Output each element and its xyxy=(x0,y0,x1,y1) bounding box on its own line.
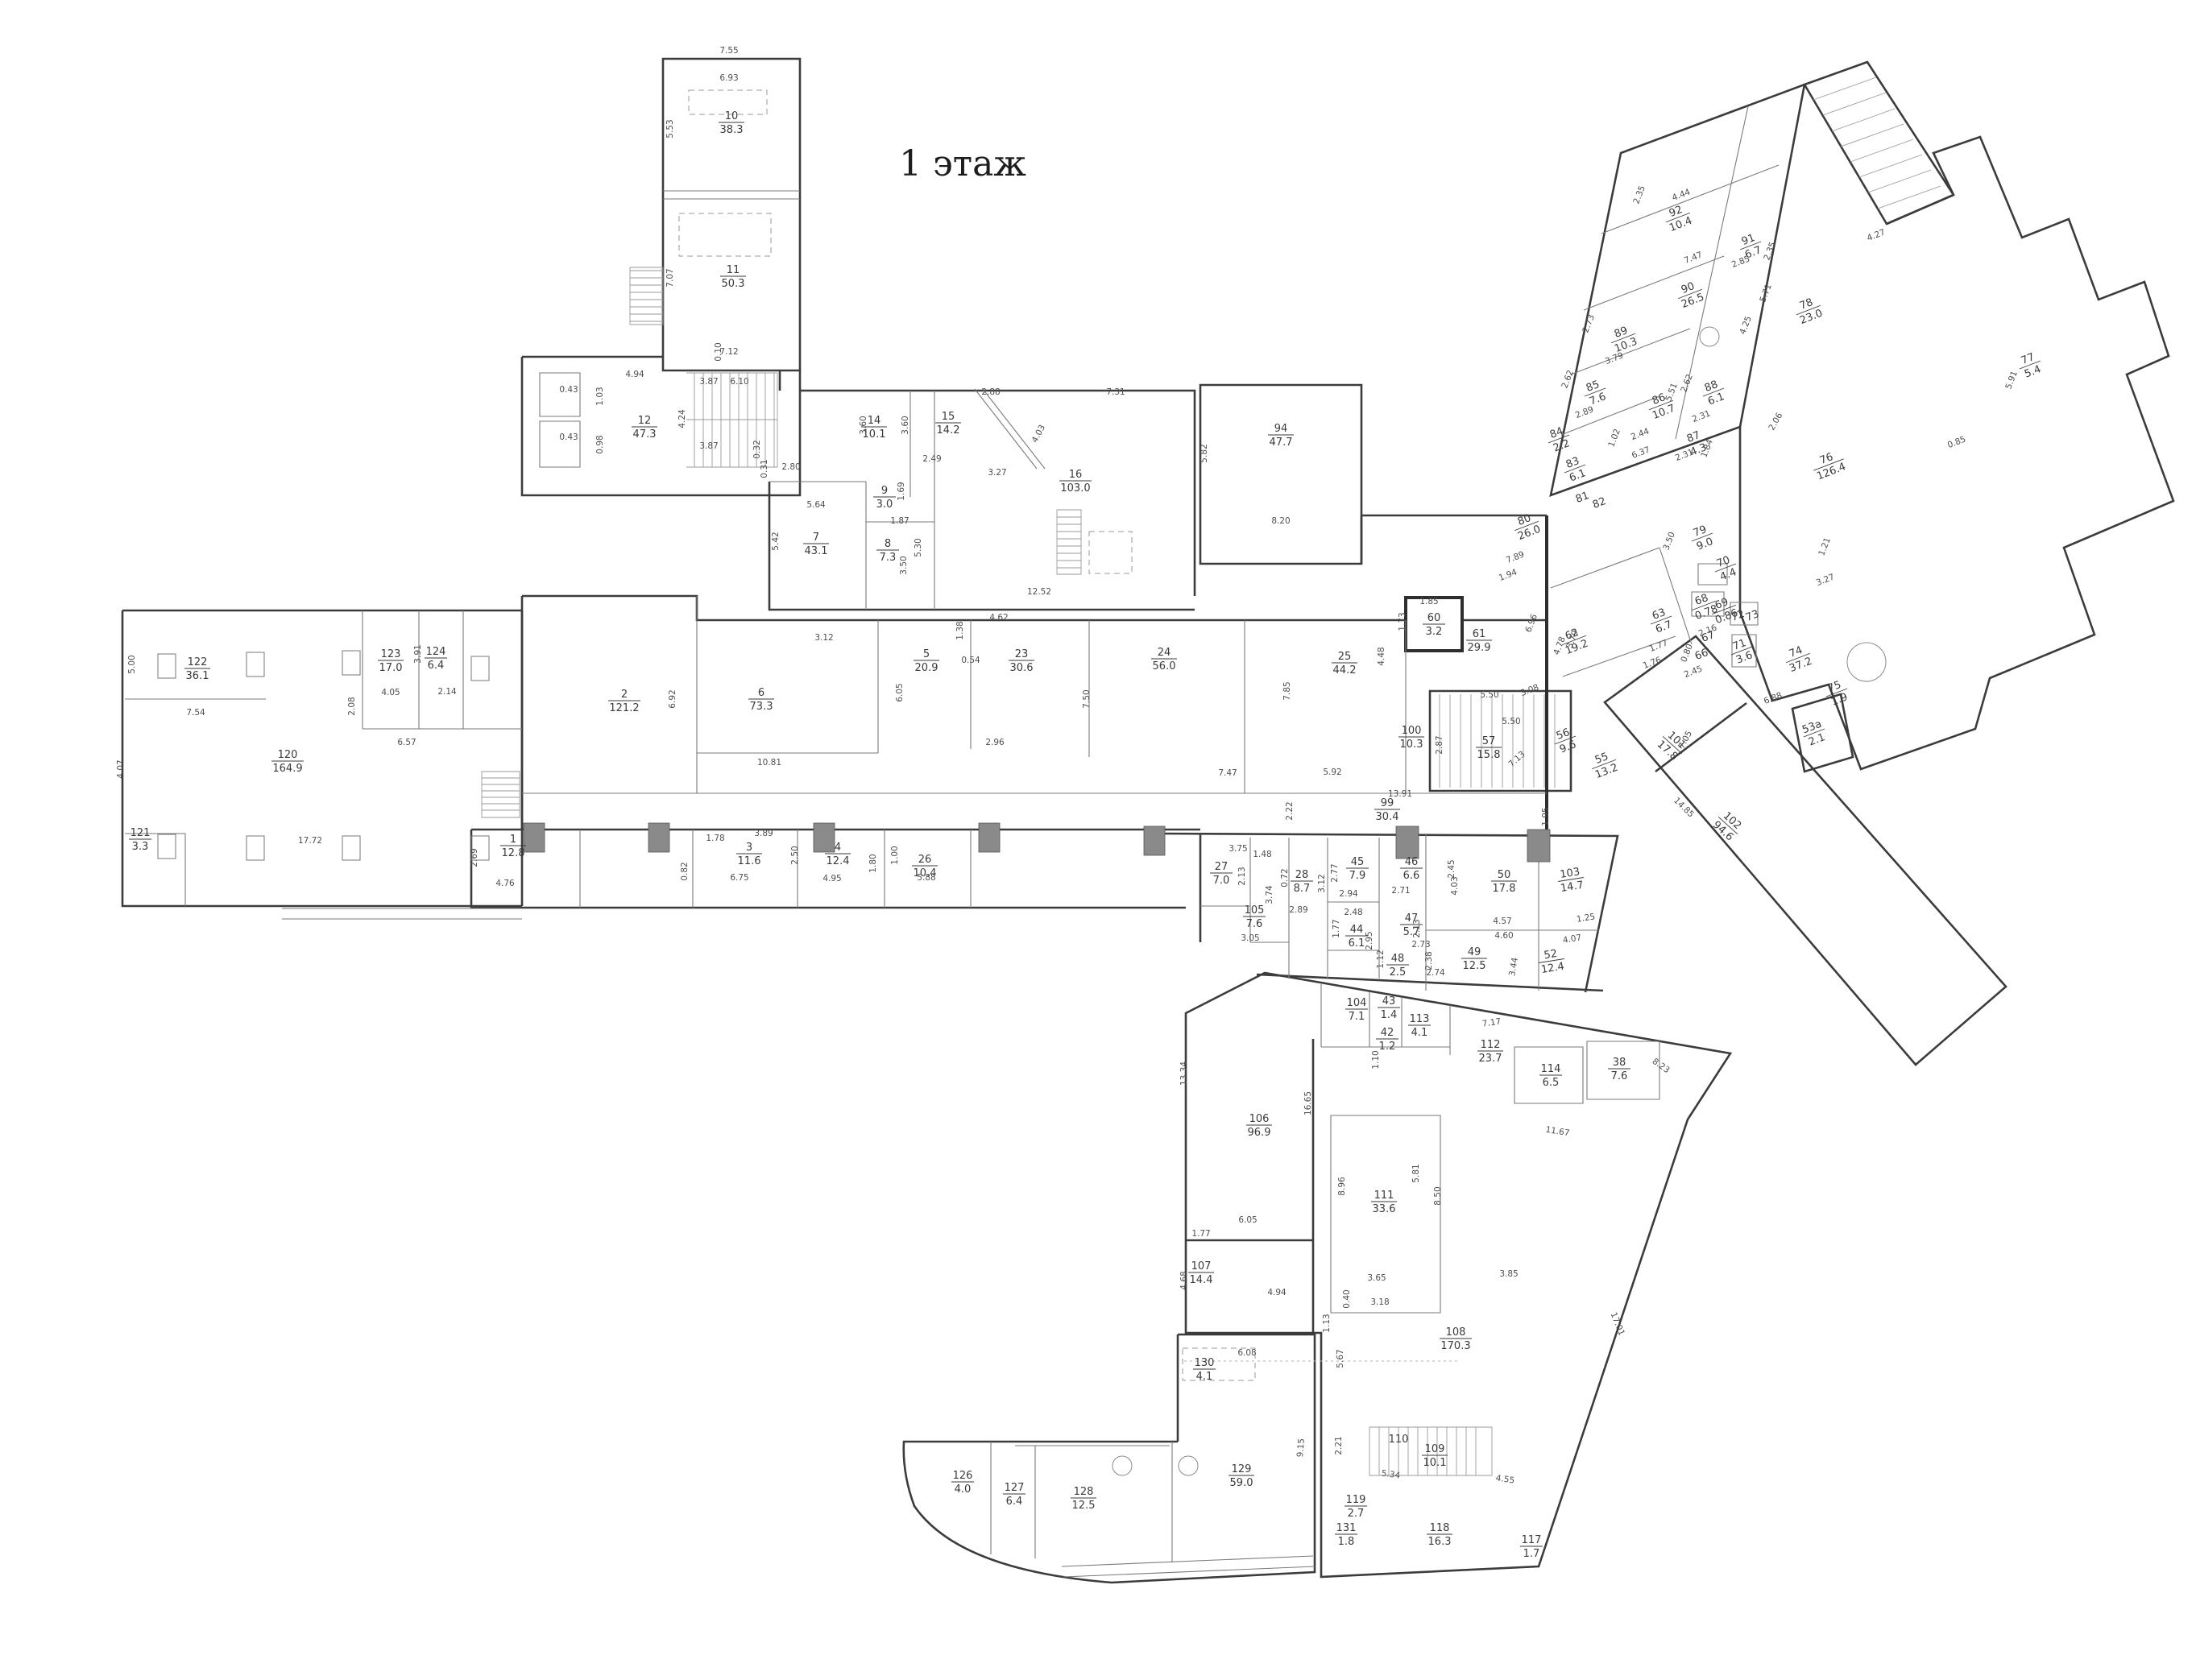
dim-label: 1.03 xyxy=(595,387,605,405)
svg-text:56.0: 56.0 xyxy=(1153,660,1176,672)
dim-label: 9.15 xyxy=(1295,1438,1307,1458)
svg-text:38.3: 38.3 xyxy=(720,124,744,136)
room-label: 110 xyxy=(1389,1434,1409,1446)
dim-label: 0.98 xyxy=(595,435,605,453)
svg-text:14.4: 14.4 xyxy=(1190,1274,1213,1286)
dim-label: 5.50 xyxy=(1480,690,1498,700)
dim-label: 0.43 xyxy=(559,385,578,395)
svg-text:6.4: 6.4 xyxy=(428,660,445,672)
dim-label: 1.21 xyxy=(1817,536,1833,557)
svg-text:96.9: 96.9 xyxy=(1248,1127,1271,1139)
dim-label: 7.07 xyxy=(665,268,675,287)
dim-label: 8.50 xyxy=(1433,1186,1443,1205)
dim-label: 4.27 xyxy=(1866,227,1887,243)
dim-label: 7.89 xyxy=(1505,549,1526,565)
svg-text:129: 129 xyxy=(1232,1463,1252,1475)
svg-text:73.3: 73.3 xyxy=(750,701,773,713)
svg-text:3.2: 3.2 xyxy=(1426,626,1443,638)
dim-label: 2.06 xyxy=(1767,411,1784,432)
svg-text:4.0: 4.0 xyxy=(955,1483,972,1496)
svg-text:10.3: 10.3 xyxy=(1400,739,1423,751)
dim-label: 3.87 xyxy=(699,377,718,387)
dim-label: 1.25 xyxy=(1576,912,1596,925)
room-label: 2544.2 xyxy=(1332,651,1357,677)
dim-label: 2.96 xyxy=(985,738,1005,747)
svg-text:2: 2 xyxy=(621,689,628,701)
svg-text:50: 50 xyxy=(1498,869,1511,881)
room-label: 857.6 xyxy=(1581,377,1611,409)
dim-label: 2.94 xyxy=(1339,889,1358,899)
dim-label: 2.89 xyxy=(1574,404,1595,420)
dim-label: 4.05 xyxy=(381,688,400,697)
svg-text:127: 127 xyxy=(1005,1482,1025,1494)
dim-label: 3.60 xyxy=(901,416,910,434)
room-label: 10294.6 xyxy=(1709,808,1746,844)
svg-text:109: 109 xyxy=(1425,1443,1445,1455)
dim-label: 8.23 xyxy=(1651,1057,1672,1075)
dim-label: 13.34 xyxy=(1179,1061,1189,1086)
stair-entry xyxy=(686,373,777,467)
dim-label: 7.47 xyxy=(1683,250,1704,266)
room-label: 842.2 xyxy=(1544,424,1575,456)
dim-label: 5.64 xyxy=(806,500,826,510)
dim-label: 3.12 xyxy=(814,633,833,643)
dim-label: 14.85 xyxy=(1672,796,1696,820)
room-label: 4912.5 xyxy=(1461,946,1487,972)
room-label: 1514.2 xyxy=(935,411,961,437)
dim-label: 5.81 xyxy=(1411,1164,1421,1182)
dim-label: 2.45 xyxy=(1447,859,1456,878)
room-label: 1150.3 xyxy=(720,264,746,290)
svg-text:25: 25 xyxy=(1338,651,1352,663)
dim-label: 4.94 xyxy=(1267,1288,1287,1297)
floor-title: 1 этаж xyxy=(899,143,1026,184)
stair-west-wing xyxy=(482,772,520,817)
dim-label: 16.65 xyxy=(1303,1091,1313,1115)
svg-text:12.5: 12.5 xyxy=(1072,1500,1096,1512)
room-label: 704.4 xyxy=(1711,552,1742,585)
room-label: 120164.9 xyxy=(271,749,304,775)
svg-text:46: 46 xyxy=(1405,856,1419,868)
dim-label: 0.82 xyxy=(680,862,690,880)
svg-text:4: 4 xyxy=(835,842,841,854)
dim-label: 2.22 xyxy=(1285,801,1295,820)
dim-label: 2.69 xyxy=(470,848,479,867)
svg-text:114: 114 xyxy=(1541,1063,1561,1075)
room-label: 1264.0 xyxy=(951,1470,974,1496)
dim-label: 1.00 xyxy=(890,846,900,864)
room-label: 12236.1 xyxy=(184,656,210,682)
svg-text:106: 106 xyxy=(1249,1113,1270,1125)
dim-label: 2.71 xyxy=(1391,886,1410,896)
room-label: 520.9 xyxy=(914,648,939,674)
room-label: 431.4 xyxy=(1378,995,1400,1021)
svg-text:7: 7 xyxy=(813,532,819,544)
svg-text:23: 23 xyxy=(1015,648,1029,660)
svg-text:8.7: 8.7 xyxy=(1294,883,1311,895)
svg-text:7.6: 7.6 xyxy=(1246,918,1263,930)
svg-text:14.7: 14.7 xyxy=(1560,879,1585,895)
room-label: 636.7 xyxy=(1647,605,1677,637)
svg-text:11: 11 xyxy=(727,264,740,276)
dim-label: 5.30 xyxy=(914,538,923,557)
dim-label: 7.17 xyxy=(1481,1016,1502,1028)
dim-label: 5.91 xyxy=(2003,370,2020,391)
svg-text:111: 111 xyxy=(1374,1190,1394,1202)
dim-label: 2.48 xyxy=(1344,908,1362,917)
room-label: 775.4 xyxy=(2016,350,2046,382)
stair-wing xyxy=(1813,77,1941,209)
dim-label: 5.00 xyxy=(127,655,137,673)
dim-label: 6.93 xyxy=(719,73,738,83)
svg-text:6.1: 6.1 xyxy=(1349,937,1365,950)
svg-text:121.2: 121.2 xyxy=(609,702,639,714)
svg-text:119: 119 xyxy=(1346,1494,1366,1506)
svg-text:12.4: 12.4 xyxy=(1540,961,1565,976)
dim-label: 4.76 xyxy=(495,879,515,888)
dim-label: 7.47 xyxy=(1218,768,1237,778)
svg-text:6.5: 6.5 xyxy=(1543,1077,1560,1089)
dim-label: 5.51 xyxy=(1664,382,1680,403)
svg-text:10.1: 10.1 xyxy=(1423,1457,1447,1469)
svg-text:45: 45 xyxy=(1351,856,1365,868)
dim-label: 1.12 xyxy=(1376,950,1386,968)
dim-label: 6.75 xyxy=(730,873,748,883)
room-label: 311.6 xyxy=(736,842,762,867)
room-label: 1247.3 xyxy=(632,415,657,441)
svg-text:50.3: 50.3 xyxy=(722,278,745,290)
dim-label: 2.21 xyxy=(1334,1436,1344,1454)
svg-text:131: 131 xyxy=(1336,1522,1357,1534)
svg-text:9: 9 xyxy=(881,485,888,497)
svg-text:15.8: 15.8 xyxy=(1477,749,1501,761)
svg-text:120: 120 xyxy=(278,749,298,761)
dim-label: 0.72 xyxy=(1280,868,1290,887)
dim-label: 4.60 xyxy=(1494,931,1513,941)
dim-label: 3.18 xyxy=(1370,1297,1389,1307)
room-label: 466.6 xyxy=(1400,856,1423,882)
svg-text:110: 110 xyxy=(1389,1434,1409,1446)
room-label: 5513.2 xyxy=(1588,748,1621,781)
dim-label: 2.35 xyxy=(1631,184,1647,205)
dim-label: 5.82 xyxy=(1200,444,1209,462)
dim-label: 5.92 xyxy=(1323,768,1341,777)
svg-text:6: 6 xyxy=(758,687,764,699)
dimension-labels-layer: 7.556.935.537.077.120.104.940.430.431.03… xyxy=(116,46,2020,1486)
svg-text:33.6: 33.6 xyxy=(1373,1203,1396,1215)
room-label: 1047.1 xyxy=(1345,997,1368,1023)
room-label: 10010.3 xyxy=(1398,725,1424,751)
dim-label: 2.87 xyxy=(1435,735,1444,754)
svg-text:42: 42 xyxy=(1381,1027,1394,1039)
svg-text:6.4: 6.4 xyxy=(1006,1496,1023,1508)
svg-text:16: 16 xyxy=(1069,469,1083,481)
room-label: 16103.0 xyxy=(1059,469,1092,494)
dim-label: 3.44 xyxy=(1507,957,1520,977)
dim-label: 0.85 xyxy=(1946,434,1967,450)
stairs xyxy=(482,77,1941,1475)
dim-label: 3.87 xyxy=(699,441,718,451)
dim-label: 8.20 xyxy=(1271,516,1290,526)
svg-text:82: 82 xyxy=(1591,495,1608,511)
svg-text:23.7: 23.7 xyxy=(1479,1053,1502,1065)
svg-text:7.6: 7.6 xyxy=(1611,1070,1628,1082)
dim-label: 2.77 xyxy=(1330,863,1340,882)
dim-label: 3.12 xyxy=(1317,874,1327,892)
svg-text:99: 99 xyxy=(1381,797,1394,809)
svg-text:126: 126 xyxy=(953,1470,973,1482)
dim-label: 4.62 xyxy=(989,613,1008,623)
dim-label: 0.32 xyxy=(752,440,762,458)
dim-label: 1.77 xyxy=(1332,919,1341,937)
stair-tower xyxy=(630,267,663,325)
svg-text:20.9: 20.9 xyxy=(915,662,938,674)
svg-text:2.7: 2.7 xyxy=(1348,1508,1365,1520)
dim-label: 2.13 xyxy=(1237,867,1247,885)
dim-label: 4.95 xyxy=(822,874,841,883)
svg-text:48: 48 xyxy=(1391,953,1405,965)
dim-label: 1.87 xyxy=(890,516,909,526)
dim-label: 6.05 xyxy=(895,683,905,701)
dim-label: 5.67 xyxy=(1336,1349,1345,1368)
svg-text:43.1: 43.1 xyxy=(805,545,828,557)
room-label: 10714.4 xyxy=(1188,1260,1214,1286)
room-label: 1213.3 xyxy=(129,827,151,853)
svg-text:4.1: 4.1 xyxy=(1411,1027,1428,1039)
svg-text:1.2: 1.2 xyxy=(1379,1041,1396,1053)
room-label: 1171.7 xyxy=(1520,1534,1543,1560)
dim-label: 5.71 xyxy=(1758,283,1774,304)
dim-label: 2.80 xyxy=(781,462,800,472)
svg-text:15: 15 xyxy=(942,411,955,423)
svg-text:12.4: 12.4 xyxy=(827,855,850,867)
room-label: 603.2 xyxy=(1423,612,1445,638)
room-label: 11816.3 xyxy=(1427,1522,1452,1548)
dim-label: 7.85 xyxy=(1282,681,1292,700)
dim-label: 1.38 xyxy=(955,621,965,639)
dim-label: 2.08 xyxy=(347,697,357,715)
dim-label: 5.50 xyxy=(1502,717,1520,726)
svg-text:44: 44 xyxy=(1350,924,1364,936)
room-label: 482.5 xyxy=(1386,953,1409,979)
dim-label: 2.89 xyxy=(1289,905,1307,915)
dim-label: 2.45 xyxy=(1683,664,1704,680)
svg-text:130: 130 xyxy=(1195,1357,1215,1369)
dim-label: 4.07 xyxy=(1562,933,1582,946)
room-label: 12812.5 xyxy=(1071,1486,1096,1512)
room-label: 10910.1 xyxy=(1422,1443,1448,1469)
svg-text:8: 8 xyxy=(885,538,891,550)
svg-text:7.1: 7.1 xyxy=(1349,1011,1365,1023)
svg-text:128: 128 xyxy=(1074,1486,1094,1498)
dim-label: 3.27 xyxy=(988,468,1006,478)
svg-text:118: 118 xyxy=(1430,1522,1450,1534)
room-label: 5212.4 xyxy=(1537,947,1567,977)
svg-text:124: 124 xyxy=(426,646,446,658)
room-label: 751.9 xyxy=(1822,677,1853,710)
dim-label: 3.79 xyxy=(1604,350,1625,366)
svg-text:17.0: 17.0 xyxy=(379,662,403,674)
room-label: 1057.6 xyxy=(1243,904,1266,930)
dim-label: 4.25 xyxy=(1738,315,1754,336)
dim-label: 17.72 xyxy=(298,836,322,846)
room-label: 10314.7 xyxy=(1556,866,1586,896)
dim-label: 12.52 xyxy=(1027,587,1051,597)
svg-text:30.6: 30.6 xyxy=(1010,662,1034,674)
dim-label: 7.55 xyxy=(719,46,738,56)
svg-text:1.8: 1.8 xyxy=(1338,1536,1355,1548)
room-label: 73 xyxy=(1744,608,1761,624)
svg-text:4.1: 4.1 xyxy=(1196,1371,1213,1383)
dim-label: 7.54 xyxy=(186,708,205,718)
room-label: 799.0 xyxy=(1688,522,1718,554)
dim-label: 1.78 xyxy=(706,834,724,843)
svg-text:12.8: 12.8 xyxy=(502,847,525,859)
svg-text:170.3: 170.3 xyxy=(1440,1340,1470,1352)
dim-label: 1.10 xyxy=(1371,1050,1381,1069)
svg-text:61: 61 xyxy=(1473,628,1486,640)
dim-label: 1.77 xyxy=(1191,1229,1210,1239)
room-label: 93.0 xyxy=(873,485,896,511)
room-label: 421.2 xyxy=(1376,1027,1398,1053)
svg-text:1.7: 1.7 xyxy=(1523,1548,1540,1560)
dim-label: 3.27 xyxy=(1815,572,1836,588)
room-label: 743.1 xyxy=(803,532,829,557)
room-label: 11223.7 xyxy=(1477,1039,1503,1065)
dim-label: 10.81 xyxy=(757,758,781,768)
dim-label: 3.60 xyxy=(859,416,868,434)
dim-label: 2.73 xyxy=(1411,940,1430,950)
dim-label: 2.62 xyxy=(1679,373,1695,394)
dim-label: 2.49 xyxy=(922,454,941,464)
svg-text:7.3: 7.3 xyxy=(880,552,897,564)
dim-label: 0.31 xyxy=(760,459,769,478)
svg-text:26: 26 xyxy=(918,854,932,866)
dim-label: 2.50 xyxy=(790,846,800,864)
dim-label: 2.14 xyxy=(437,687,457,697)
dim-label: 11.67 xyxy=(1545,1125,1571,1139)
dim-label: 2.44 xyxy=(1630,426,1651,442)
svg-text:100: 100 xyxy=(1402,725,1422,737)
room-label: 9210.4 xyxy=(1662,201,1695,234)
room-label: 836.1 xyxy=(1560,453,1591,486)
svg-text:10: 10 xyxy=(725,110,739,122)
svg-text:49: 49 xyxy=(1468,946,1481,958)
dim-label: 5.34 xyxy=(1381,1468,1401,1480)
svg-text:112: 112 xyxy=(1481,1039,1501,1051)
svg-text:3.3: 3.3 xyxy=(132,841,149,853)
dim-label: 4.44 xyxy=(1671,187,1692,203)
svg-text:117: 117 xyxy=(1522,1534,1542,1546)
room-label: 6129.9 xyxy=(1466,628,1492,654)
svg-text:12.5: 12.5 xyxy=(1463,960,1486,972)
dim-label: 1.77 xyxy=(1648,638,1669,654)
dim-label: 0.10 xyxy=(714,342,723,361)
dim-label: 6.08 xyxy=(1237,1348,1256,1358)
room-label: 1276.4 xyxy=(1003,1482,1025,1508)
dim-label: 3.50 xyxy=(1661,531,1677,552)
room-label: 5715.8 xyxy=(1476,735,1502,761)
room-label: 2456.0 xyxy=(1151,647,1177,672)
svg-text:38: 38 xyxy=(1613,1057,1626,1069)
svg-text:16.3: 16.3 xyxy=(1428,1536,1452,1548)
dim-label: 4.24 xyxy=(677,409,687,428)
svg-text:43: 43 xyxy=(1382,995,1396,1008)
room-label: 288.7 xyxy=(1291,869,1313,895)
dim-label: 2.88 xyxy=(981,387,1000,397)
dim-label: 6.05 xyxy=(1238,1215,1257,1225)
room-label: 886.1 xyxy=(1699,377,1730,409)
room-label: 387.6 xyxy=(1608,1057,1630,1082)
room-label: 457.9 xyxy=(1346,856,1369,882)
dim-label: 3.74 xyxy=(1265,885,1274,904)
svg-text:164.9: 164.9 xyxy=(272,763,302,775)
room-label: 1246.4 xyxy=(425,646,447,672)
svg-text:104: 104 xyxy=(1347,997,1367,1009)
svg-text:2.5: 2.5 xyxy=(1390,966,1407,979)
dim-label: 4.07 xyxy=(116,759,126,778)
svg-text:59.0: 59.0 xyxy=(1230,1477,1253,1489)
svg-text:123: 123 xyxy=(381,648,401,660)
svg-text:30.4: 30.4 xyxy=(1376,811,1399,823)
dim-label: 4.48 xyxy=(1377,647,1386,665)
dim-label: 5.53 xyxy=(665,119,675,138)
svg-text:6.6: 6.6 xyxy=(1403,870,1420,882)
room-label: 713.6 xyxy=(1727,635,1758,668)
svg-text:44.2: 44.2 xyxy=(1333,664,1357,677)
dim-label: 13.91 xyxy=(1388,789,1412,799)
room-label: 82 xyxy=(1591,495,1608,511)
dim-label: 6.96 xyxy=(1523,613,1539,634)
dim-label: 7.31 xyxy=(1106,387,1125,397)
dim-label: 4.03 xyxy=(1030,423,1048,444)
svg-text:73: 73 xyxy=(1744,608,1761,624)
dim-label: 1.94 xyxy=(1498,567,1519,583)
dim-label: 0.54 xyxy=(961,656,980,665)
dim-label: 17.01 xyxy=(1609,1311,1626,1337)
room-label: 1304.1 xyxy=(1193,1357,1216,1383)
dim-label: 2.13 xyxy=(1412,919,1422,937)
dim-label: 7.05 xyxy=(1677,729,1695,750)
svg-text:113: 113 xyxy=(1410,1013,1430,1025)
dim-label: 4.55 xyxy=(1495,1473,1515,1485)
dim-label: 3.08 xyxy=(1519,682,1540,698)
svg-text:103.0: 103.0 xyxy=(1060,482,1090,494)
dim-label: 1.69 xyxy=(897,482,906,500)
svg-text:107: 107 xyxy=(1191,1260,1212,1272)
dim-label: 2.73 xyxy=(1581,313,1597,334)
svg-text:3: 3 xyxy=(746,842,752,854)
dim-label: 6.10 xyxy=(730,377,748,387)
dim-label: 1.13 xyxy=(1322,1314,1332,1332)
dim-label: 0.43 xyxy=(559,432,578,442)
dim-label: 3.91 xyxy=(413,644,423,663)
svg-text:52: 52 xyxy=(1543,948,1558,962)
room-label: 108170.3 xyxy=(1440,1326,1472,1352)
dim-label: 2.35 xyxy=(1762,241,1778,262)
dim-label: 2.95 xyxy=(1365,931,1374,950)
room-label: 8910.3 xyxy=(1607,322,1640,355)
room-label: 76126.4 xyxy=(1809,448,1849,483)
room-label: 10696.9 xyxy=(1246,1113,1272,1139)
room-label: 87.3 xyxy=(876,538,899,564)
room-label: 5017.8 xyxy=(1491,869,1517,895)
dim-label: 5.88 xyxy=(917,873,935,883)
dim-label: 1.85 xyxy=(1419,597,1438,606)
dim-label: 6.57 xyxy=(397,738,416,747)
svg-text:121: 121 xyxy=(131,827,151,839)
dim-label: 4.68 xyxy=(1179,1271,1189,1289)
